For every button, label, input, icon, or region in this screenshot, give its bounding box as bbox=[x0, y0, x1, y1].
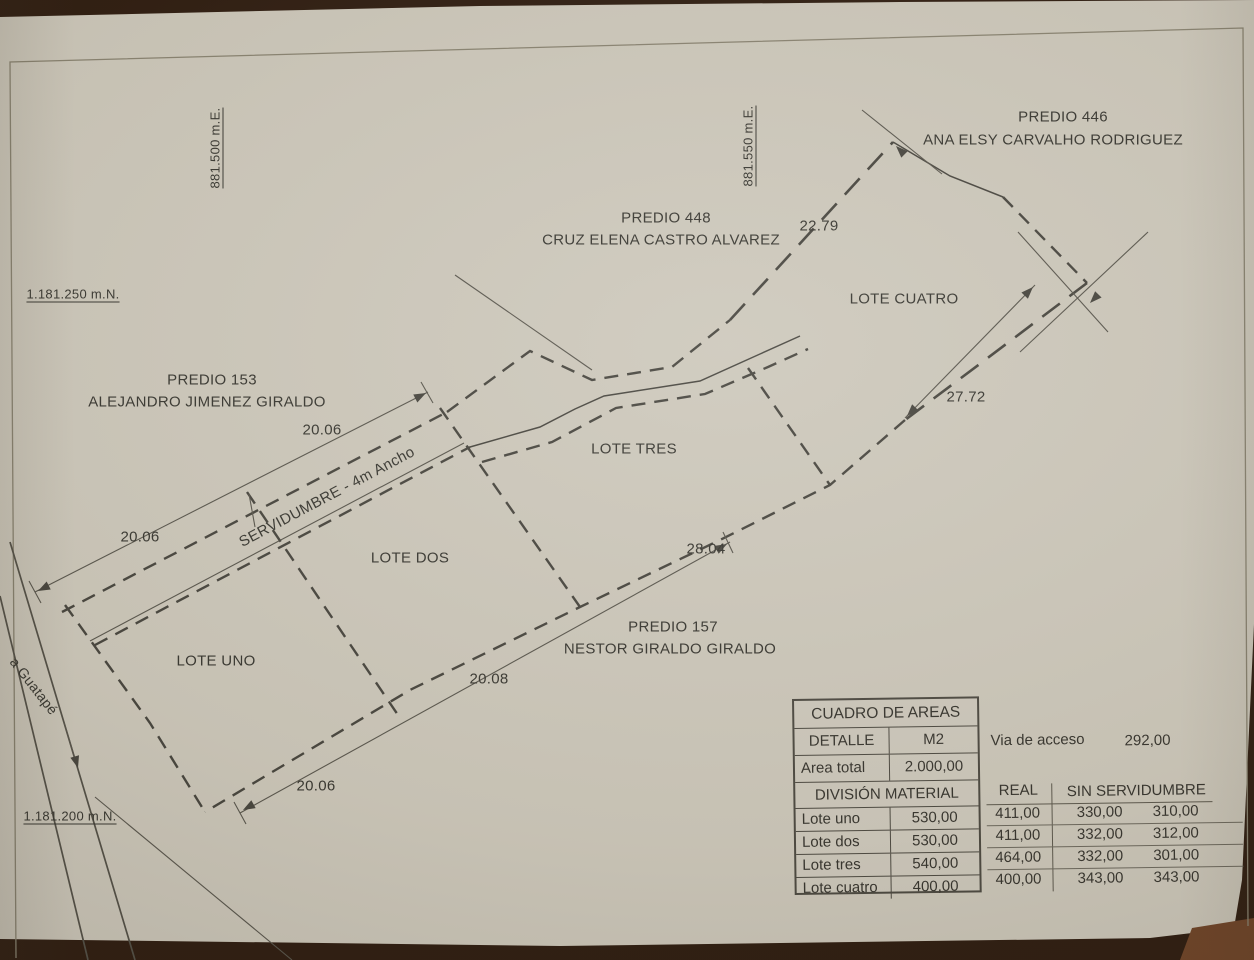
col-header-detalle: DETALLE bbox=[794, 728, 889, 755]
area-total-value: 2.000,00 bbox=[890, 753, 978, 780]
col-header-sin-servidumbre: SIN SERVIDUMBRE bbox=[1061, 781, 1211, 800]
lote-m2: 540,00 bbox=[891, 852, 979, 875]
table-row-lote-dos: Lote dos 530,00 bbox=[796, 829, 979, 855]
plan-label-predio-446-owner: ANA ELSY CARVALHO RODRIGUEZ bbox=[923, 132, 1183, 149]
plan-label-predio-448-owner: CRUZ ELENA CASTRO ALVAREZ bbox=[542, 232, 780, 249]
via-de-acceso-label: Via de acceso bbox=[990, 731, 1084, 749]
plan-label-lote-dos: LOTE DOS bbox=[371, 550, 449, 567]
plan-label-lote-cuatro: LOTE CUATRO bbox=[850, 291, 959, 308]
division-material-header: DIVISIÓN MATERIAL bbox=[795, 780, 978, 809]
real-value: 400,00 bbox=[987, 868, 1049, 891]
lote-name: Lote uno bbox=[796, 808, 891, 831]
areas-table: CUADRO DE AREAS DETALLE M2 Area total 2.… bbox=[792, 693, 1254, 909]
plan-label-predio-157-number: PREDIO 157 bbox=[628, 619, 718, 636]
table-row-lote-uno: Lote uno 530,00 bbox=[796, 806, 979, 832]
sin-value-1: 332,00 bbox=[1069, 845, 1131, 868]
real-value: 411,00 bbox=[986, 802, 1048, 825]
plan-label-lote-uno: LOTE UNO bbox=[176, 653, 255, 670]
plan-label-dim-28-04: 28.04 bbox=[686, 541, 725, 558]
plan-label-coord-e-881500: 881.500 m.E. bbox=[208, 108, 223, 189]
plan-label-predio-153-number: PREDIO 153 bbox=[167, 372, 257, 389]
sin-value-1: 343,00 bbox=[1069, 867, 1131, 890]
plan-label-road-guatape: a Guatapé bbox=[7, 654, 62, 718]
area-total-label: Area total bbox=[795, 755, 890, 782]
sin-value-2: 310,00 bbox=[1144, 800, 1206, 823]
plan-label-dim-22-79: 22.79 bbox=[799, 218, 838, 235]
plan-label-dim-20-08: 20.08 bbox=[469, 671, 508, 688]
sin-value-2: 343,00 bbox=[1145, 866, 1207, 889]
areas-table-box: CUADRO DE AREAS DETALLE M2 Area total 2.… bbox=[792, 696, 982, 895]
right-values-lote-cuatro: 400,00 343,00 343,00 bbox=[987, 866, 1243, 892]
lote-m2: 530,00 bbox=[891, 829, 979, 852]
sin-value-1: 330,00 bbox=[1068, 801, 1130, 824]
via-de-acceso-value: 292,00 bbox=[1124, 732, 1170, 750]
lote-name: Lote tres bbox=[796, 854, 891, 877]
photo-background: PREDIO 446ANA ELSY CARVALHO RODRIGUEZPRE… bbox=[0, 0, 1254, 960]
plan-label-dim-20-06-bottom: 20.06 bbox=[296, 778, 335, 795]
plan-label-coord-e-881550: 881.550 m.E. bbox=[741, 106, 756, 187]
plan-label-coord-n-1181200: 1.181.200 m.N. bbox=[23, 809, 116, 824]
col-header-m2: M2 bbox=[889, 726, 977, 753]
lote-name: Lote dos bbox=[796, 831, 891, 854]
sin-value-1: 332,00 bbox=[1069, 823, 1131, 846]
sin-value-2: 301,00 bbox=[1145, 844, 1207, 867]
plan-label-coord-n-1181250: 1.181.250 m.N. bbox=[26, 287, 119, 302]
plan-label-predio-153-owner: ALEJANDRO JIMENEZ GIRALDO bbox=[88, 394, 326, 411]
area-total-row: Area total 2.000,00 bbox=[795, 753, 978, 783]
plan-label-dim-27-72: 27.72 bbox=[946, 389, 985, 406]
table-row-lote-cuatro: Lote cuatro 400,00 bbox=[796, 875, 979, 900]
areas-table-header-row: DETALLE M2 bbox=[794, 726, 977, 756]
plan-label-lote-tres: LOTE TRES bbox=[591, 441, 677, 458]
plan-label-dim-20-06-left: 20.06 bbox=[120, 529, 159, 546]
plan-label-dim-20-06-top: 20.06 bbox=[302, 422, 341, 439]
table-row-lote-tres: Lote tres 540,00 bbox=[796, 852, 979, 878]
plan-label-predio-446-number: PREDIO 446 bbox=[1018, 109, 1108, 126]
plan-label-servidumbre: SERVIDUMBRE - 4m Ancho bbox=[236, 443, 417, 550]
plan-label-predio-157-owner: NESTOR GIRALDO GIRALDO bbox=[564, 641, 776, 658]
lote-m2: 530,00 bbox=[891, 806, 979, 829]
lote-m2: 400,00 bbox=[891, 875, 979, 898]
photo-of-survey-plan: { "photo": { "wood_dark": "#2c1a0e", "wo… bbox=[0, 0, 1254, 960]
col-header-real: REAL bbox=[988, 781, 1048, 799]
lote-name: Lote cuatro bbox=[796, 877, 891, 900]
real-value: 464,00 bbox=[987, 846, 1049, 869]
plan-label-predio-448-number: PREDIO 448 bbox=[621, 210, 711, 227]
areas-table-title: CUADRO DE AREAS bbox=[794, 698, 977, 729]
real-value: 411,00 bbox=[987, 824, 1049, 847]
sin-value-2: 312,00 bbox=[1145, 822, 1207, 845]
